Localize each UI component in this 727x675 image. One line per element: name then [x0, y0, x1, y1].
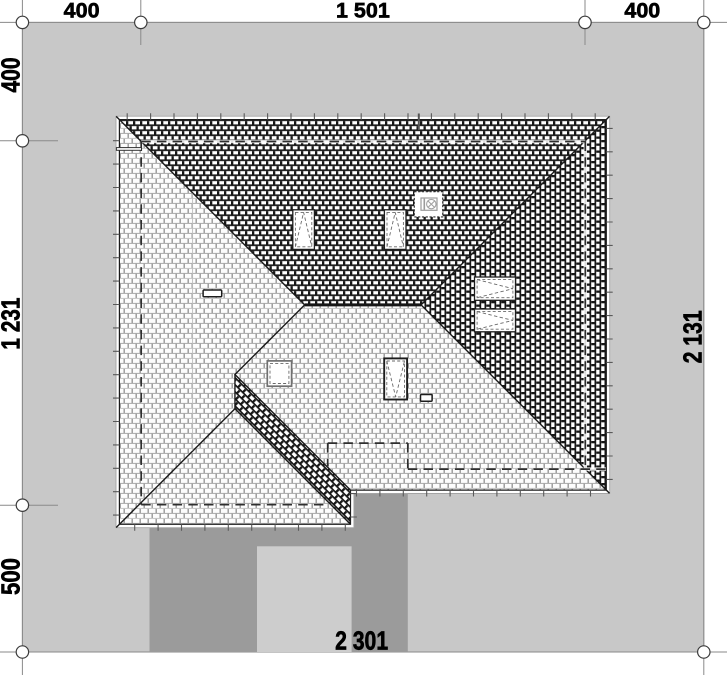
svg-text:400: 400 — [64, 0, 100, 22]
svg-text:2 131: 2 131 — [680, 310, 708, 363]
svg-text:400: 400 — [0, 58, 26, 93]
svg-text:2 301: 2 301 — [335, 627, 388, 655]
svg-text:500: 500 — [0, 558, 26, 595]
svg-text:1 501: 1 501 — [336, 0, 390, 22]
svg-text:400: 400 — [624, 0, 660, 22]
svg-text:1 231: 1 231 — [0, 298, 26, 350]
